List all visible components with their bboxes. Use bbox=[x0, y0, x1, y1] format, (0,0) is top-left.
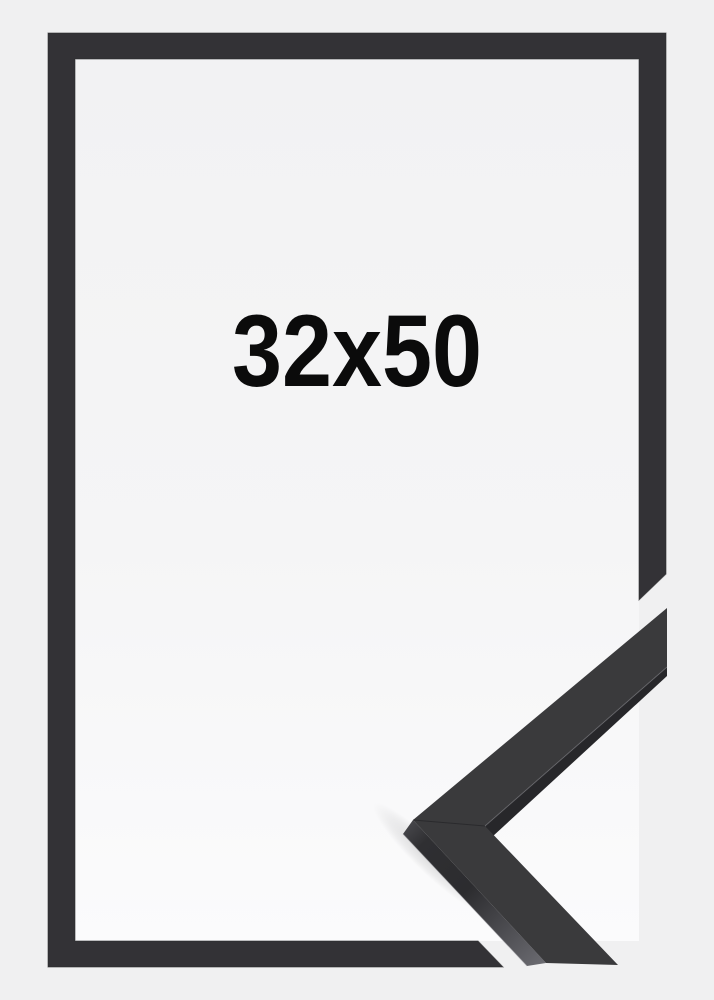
frame-opening bbox=[75, 59, 639, 941]
size-label: 32x50 bbox=[232, 294, 482, 408]
product-image: 32x50 bbox=[0, 0, 714, 1000]
frame-product-photo: 32x50 bbox=[0, 0, 714, 1000]
